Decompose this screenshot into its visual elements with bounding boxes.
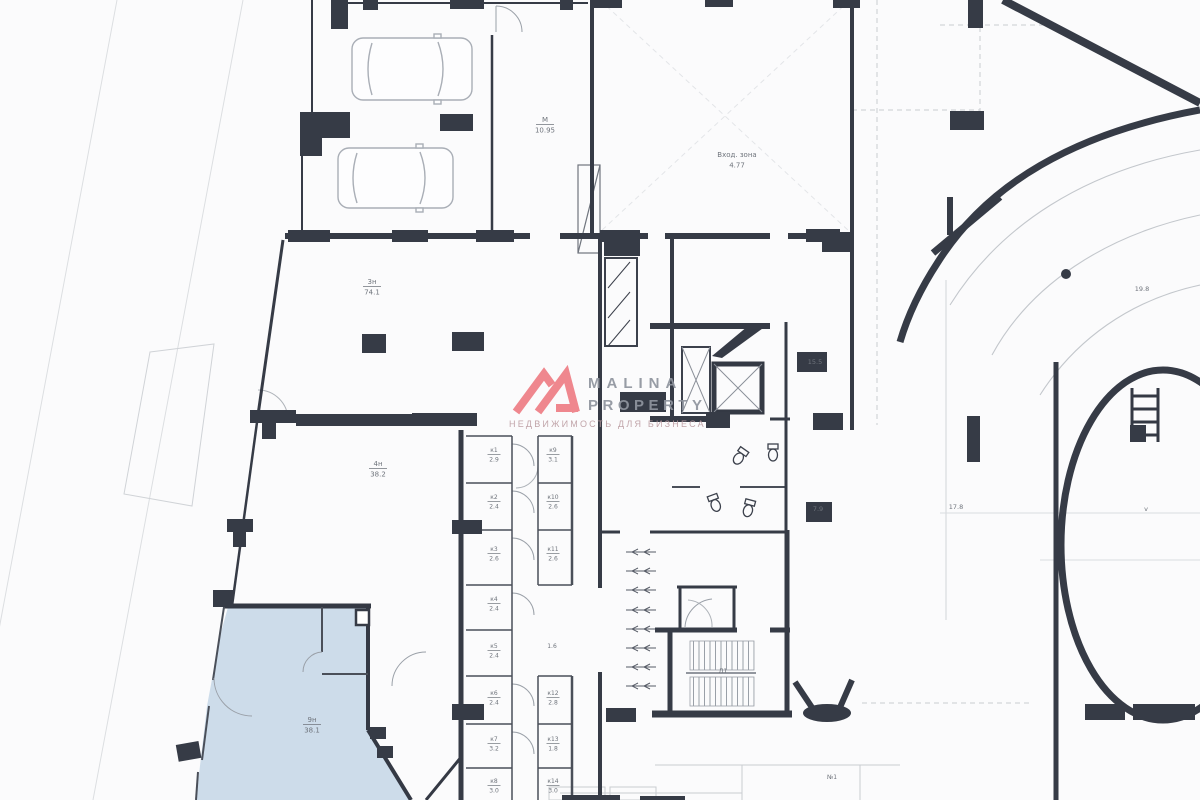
room-label: к83.0 [489,778,499,795]
toilet-icon [707,493,722,512]
room-label: Л1 [718,667,727,675]
room-label: 19.8 [1135,285,1149,293]
room-label: Вход. зона4.77 [717,151,756,170]
room-label: к143.0 [547,778,558,795]
highlighted-room-fill [196,607,411,800]
floor-plan-drawing: М10.95Вход. зона4.773н74.14н38.29н38.115… [0,0,1200,800]
room-label: к102.6 [547,494,558,511]
watermark-line1: MALINA [588,375,682,392]
highlighted-room [196,606,462,800]
room-label: 1.6 [547,643,557,650]
room-label: к131.8 [547,736,558,753]
toilet-icon [731,447,749,467]
room-label: к12.9 [489,447,499,464]
car-icon [352,34,472,104]
room-label: №1 [827,774,837,781]
room-label: 7.9 [813,505,823,513]
direction-arrows [626,549,656,689]
watermark-line2: PROPERTY [588,397,707,414]
malina-logo-icon [516,374,578,412]
room-label: v [1144,505,1148,513]
fixtures [258,6,1158,754]
watermark: MALINA PROPERTY НЕДВИЖИМОСТЬ ДЛЯ БИЗНЕСА [509,374,707,429]
ladder-icon [1130,388,1158,442]
room-label: к62.4 [489,690,499,707]
car-icon [338,144,453,212]
room-label: М10.95 [535,116,555,135]
room-label: 17.8 [949,503,963,511]
room-label: 3н74.1 [364,278,380,297]
room-label: к42.4 [489,596,499,613]
watermark-line3: НЕДВИЖИМОСТЬ ДЛЯ БИЗНЕСА [509,419,706,429]
room-label: к122.8 [547,690,558,707]
room-label: 15.5 [808,358,822,366]
floor-plan-page: М10.95Вход. зона4.773н74.14н38.29н38.115… [0,0,1200,800]
shaft-with-hatches [605,258,637,346]
site-boundary-lines [0,0,243,800]
room-label: к32.6 [489,546,499,563]
toilet-icon [742,499,756,518]
room-label: к22.4 [489,494,499,511]
toilet-icon [768,444,778,461]
shaft-notch [356,610,369,625]
room-label: 4н38.2 [370,460,386,479]
curved-facade-guides [940,150,1200,620]
room-label: к52.4 [489,643,499,660]
room-label: к112.6 [547,546,558,563]
room-label: к73.2 [489,736,499,753]
wc-toilets [707,444,778,518]
room-label: к93.1 [548,447,558,464]
grid-dashed-lines [600,0,1056,703]
